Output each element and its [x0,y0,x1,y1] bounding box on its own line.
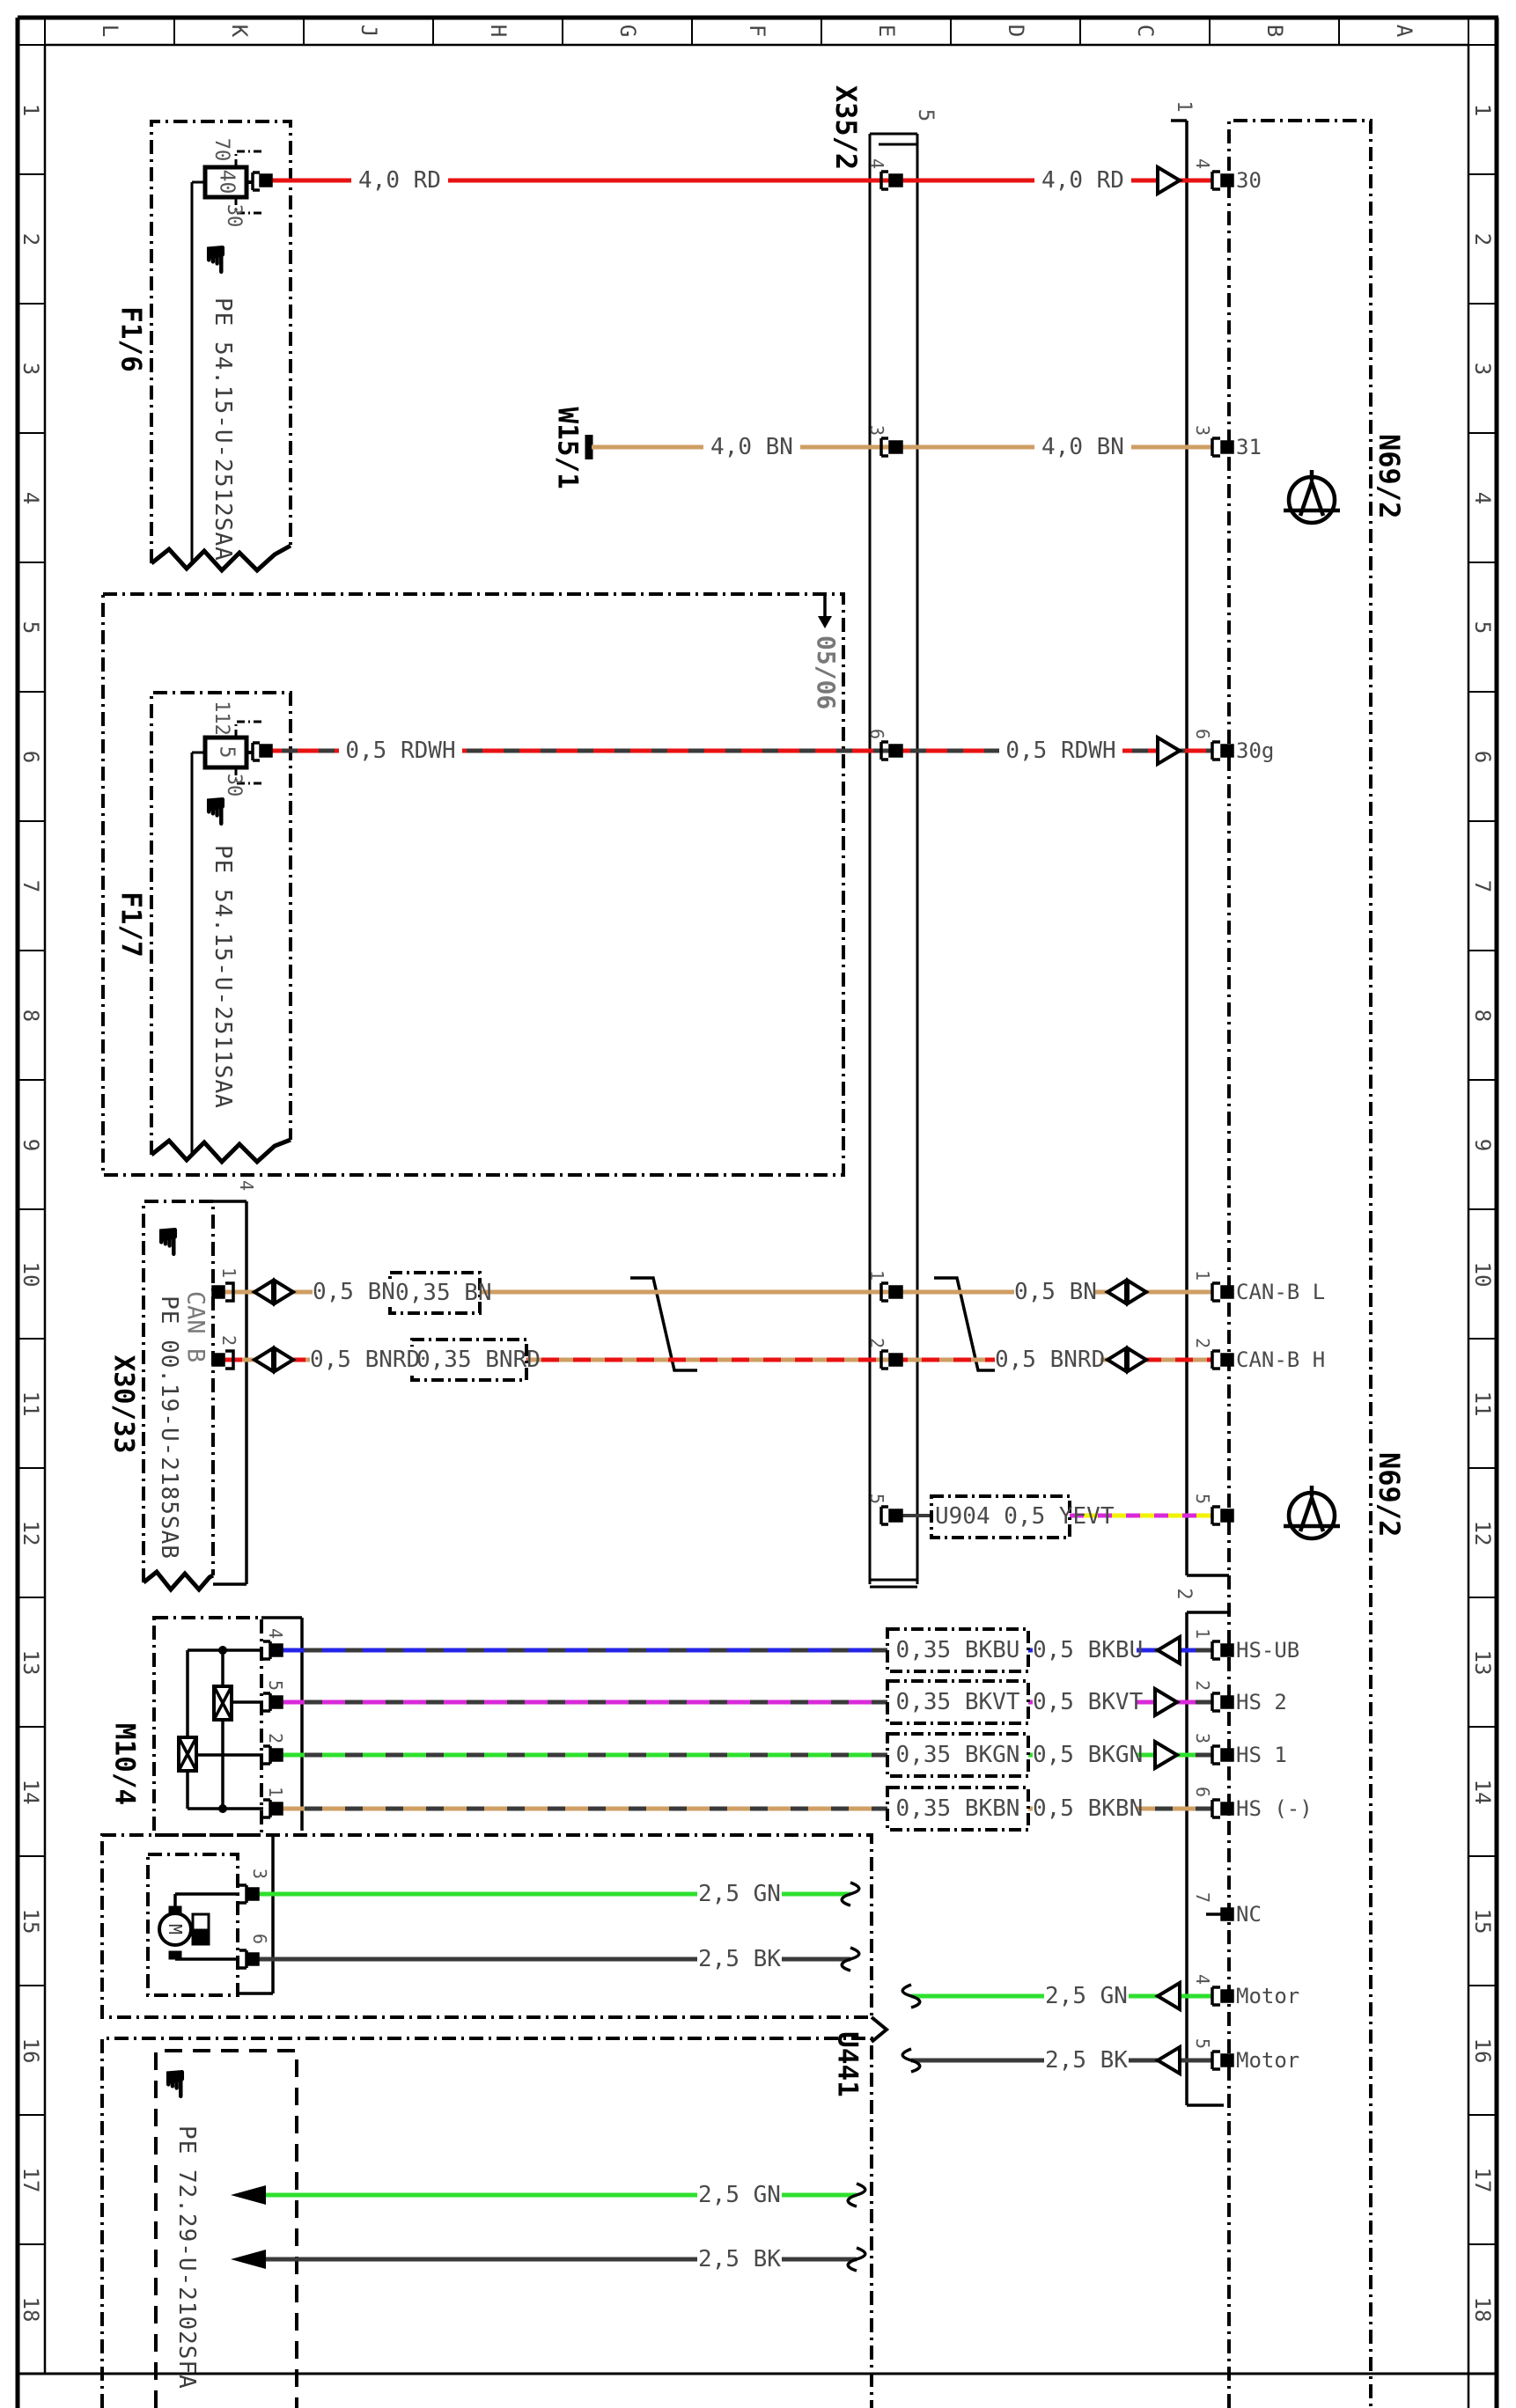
f16-rating: 40 [217,169,237,195]
wire-label: 0,5 BNRD [310,1347,416,1373]
grid-row-number-left: 10 [20,1257,41,1292]
grid-row-number-left: 16 [20,2033,41,2068]
n692-pin: 3 [1194,1732,1211,1744]
f17-pe-ref: PE 54.15-U-2511SAA [211,845,234,1091]
junction-dot [218,1804,227,1813]
grid-row-number-right: 4 [1472,481,1493,516]
junction-dot [218,1646,227,1655]
grid-row-number-left: 9 [20,1127,41,1163]
grid-row-number-right: 10 [1472,1257,1493,1292]
grid-row-number-right: 13 [1472,1645,1493,1680]
signal-hs-ub: HS-UB [1236,1638,1299,1663]
wire-label-boxed: 0,35 BKBU [891,1637,1025,1663]
arrow-motor2 [1158,2047,1180,2074]
arrow-motor1 [1158,1983,1180,2009]
grid-row-number-left: 1 [20,92,41,128]
wire-label: 2,5 BK [697,1946,782,1972]
n692-pin: 1 [1194,1269,1211,1281]
n692-pin: 2 [1194,1679,1211,1692]
strip-pin: 6 [868,728,886,740]
n692-pin: 2 [1194,1337,1211,1349]
pe-hand-icon: ☛ [195,792,234,831]
m104-pin: 4 [267,1627,284,1640]
grid-row-number-left: 4 [20,481,41,516]
n692-connector1-bar [1171,121,1229,1575]
grid-ruler-lines [18,18,1498,2374]
grid-row-number-right: 5 [1472,610,1493,645]
n692-pin: 4 [1194,1973,1211,1986]
grid-letter: B [1264,13,1285,48]
wire-label: 2,5 GN [1044,1983,1129,2009]
grid-row-number-left: 6 [20,739,41,775]
f17-label: F1/7 [117,891,144,959]
grid-letter: D [1005,13,1027,48]
wire-label: 2,5 BK [697,2246,782,2272]
grid-row-number-left: 11 [20,1386,41,1421]
wire-label: 0,5 RDWH [339,738,462,764]
direction-arrows [1155,167,1180,2074]
wire-label-boxed: 0,35 BKGN [891,1742,1025,1768]
w151-label: W15/1 [554,407,581,485]
arrow-hsub [1158,1637,1180,1663]
n692-pin: 3 [1194,424,1211,437]
grid-row-number-right: 2 [1472,222,1493,257]
grid-row-number-right: 14 [1472,1774,1493,1810]
x352-label: X35/2 [832,81,860,174]
x352-connector-number: 5 [916,106,937,124]
grid-row-number-left: 2 [20,222,41,257]
wire-label: 4,0 BN [703,434,800,460]
strip-pin: 5 [868,1493,886,1505]
m104-motor-bar [238,1835,273,1993]
signal-nc: NC [1236,1902,1262,1927]
strip-pin: 3 [868,424,886,437]
wire-label-boxed: 0,35 BNRD [416,1347,522,1373]
grid-row-number-left: 14 [20,1774,41,1810]
can-pe-ref: PE 00.19-U-2185SAB [158,1296,180,1560]
grid-row-number-right: 11 [1472,1386,1493,1421]
grid-row-number-left: 17 [20,2162,41,2198]
pe-hand-icon: ☛ [195,240,234,279]
wire-label-boxed: 0,35 BN [395,1280,476,1306]
can-bar [213,1201,247,1584]
grid-row-number-left: 7 [20,869,41,904]
strip-pin: 4 [868,158,886,170]
arrow-30g [1158,738,1180,764]
grid-letter: E [876,13,897,48]
grid-row-number-right: 3 [1472,351,1493,386]
m104-valve-circuit [179,1650,263,1809]
wire-label: 0,5 BKVT [1033,1689,1137,1715]
wire-label: 0,5 BNRD [995,1347,1100,1373]
n692-connector2-number: 2 [1174,1588,1193,1600]
grid-letter: F [747,13,768,48]
f16-pe-ref: PE 54.15-U-2512SAA [211,297,234,544]
n692-pin: 1 [1194,1627,1211,1640]
wire-label: 0,5 BN [1014,1279,1093,1305]
strip-pin: 1 [868,1269,886,1281]
pe-hand-icon: ☛ [148,1222,187,1261]
n692-label-2: N69/2 [1375,1452,1403,1537]
m104-motor-pin: 3 [251,1868,269,1880]
grid-letter: H [488,13,509,48]
wire-label: 2,5 GN [697,2182,782,2208]
wire-label-boxed: U904 0,5 YEVT [935,1503,1066,1530]
grid-row-number-right: 16 [1472,2033,1493,2068]
wire-label: 0,5 BN [313,1279,392,1305]
arrow-30 [1158,167,1180,194]
wire-label: 2,5 BK [1044,2047,1129,2074]
can-pin-1: 1 [220,1266,238,1279]
grid-row-number-right: 9 [1472,1127,1493,1163]
n692-pin: 6 [1194,1786,1211,1798]
grid-row-number-left: 5 [20,610,41,645]
arrow-hs2 [1155,1689,1177,1715]
m104-pin: 5 [267,1679,284,1692]
variant-marker: 05/06 [813,635,838,708]
grid-row-number-right: 1 [1472,92,1493,128]
grid-letter: K [229,13,250,48]
can-pin-2: 2 [220,1334,238,1347]
grid-row-number-left: 18 [20,2292,41,2327]
wire-label: 4,0 RD [351,167,448,194]
grid-letter: C [1135,13,1156,48]
grid-row-number-right: 12 [1472,1516,1493,1551]
grid-row-number-left: 8 [20,998,41,1033]
wire-label: 2,5 GN [697,1881,782,1907]
can-connector-number: 4 [238,1179,255,1192]
grid-letter: G [617,13,638,48]
grid-row-number-right: 7 [1472,869,1493,904]
strip-pin: 2 [868,1337,886,1349]
f16-term-bottom: 30 [224,203,243,228]
u441-pe-ref: PE 72.29-U-2102SFA [175,2125,198,2372]
signal-30: 30 [1236,168,1262,193]
signal-canb-h: CAN-B H [1236,1347,1325,1372]
signal-motor-2: Motor [1236,2048,1299,2073]
grid-letter: L [99,13,121,48]
n692-pin: 7 [1194,1891,1211,1904]
wire-label: 0,5 BKBN [1033,1795,1137,1822]
can-bus-label: CAN B [184,1285,208,1369]
n692-connector1-number: 1 [1174,100,1193,113]
pe-hand-icon: ☛ [155,2065,194,2103]
signal-30g: 30g [1236,738,1274,763]
wire-label: 0,5 BKBU [1033,1637,1137,1663]
wire-label: 0,5 BKGN [1033,1742,1137,1768]
grid-letter: A [1394,13,1415,48]
grid-row-number-left: 12 [20,1516,41,1551]
f17-rating: 5 [217,746,237,759]
grid-row-number-left: 15 [20,1904,41,1939]
ground-symbol [1284,470,1340,523]
box-continuation-notch [872,2017,887,2042]
wiring-diagram-page: X35/2 5 F1/6 70 40 30 ☛ PE 54.15-U-2512S… [0,0,1516,2408]
m104-pin: 1 [267,1786,284,1798]
x3033-label: X30/33 [110,1355,137,1452]
m104-motor-pin: 6 [251,1933,269,1945]
n692-pin: 4 [1194,158,1211,170]
signal-hs2: HS 2 [1236,1690,1287,1714]
wire-label-boxed: 0,35 BKVT [891,1689,1025,1715]
wire-label: 4,0 RD [1034,167,1131,194]
option-box-b [102,2038,872,2408]
grid-row-number-right: 17 [1472,2162,1493,2198]
signal-hs-minus: HS (-) [1236,1796,1313,1821]
n692-pin: 6 [1194,728,1211,740]
f17-term-top: 112 [211,701,231,736]
n692-pin: 5 [1194,2037,1211,2050]
m104-pin: 2 [267,1732,284,1744]
grid-row-number-right: 18 [1472,2292,1493,2327]
ground-symbol [1284,1486,1340,1538]
arrow-hs1 [1155,1742,1177,1768]
option-box-a [102,1835,872,2017]
u441-label: U441 [834,2030,861,2099]
signal-31: 31 [1236,435,1262,459]
m104-label: M10/4 [111,1722,138,1807]
grid-row-number-right: 6 [1472,739,1493,775]
wire-label: 0,5 RDWH [999,738,1122,764]
wire-label-boxed: 0,35 BKBN [891,1795,1025,1822]
signal-hs1: HS 1 [1236,1743,1287,1767]
wire-label: 4,0 BN [1034,434,1131,460]
x352-strip [870,134,917,1587]
grid-row-number-left: 13 [20,1645,41,1680]
grid-letter: J [358,13,379,48]
pe-arrows [231,2185,266,2269]
signal-motor-1: Motor [1236,1984,1299,2008]
n692-label: N69/2 [1375,434,1403,518]
grid-row-number-left: 3 [20,351,41,386]
f16-label: F1/6 [117,305,144,374]
motor-m-letter: M [166,1923,184,1935]
grid-row-number-right: 8 [1472,998,1493,1033]
signal-canb-l: CAN-B L [1236,1280,1325,1304]
n692-pin: 5 [1194,1493,1211,1505]
variant-arrow-icon [818,595,832,628]
f16-term-top: 70 [211,137,231,162]
grid-row-number-right: 15 [1472,1904,1493,1939]
